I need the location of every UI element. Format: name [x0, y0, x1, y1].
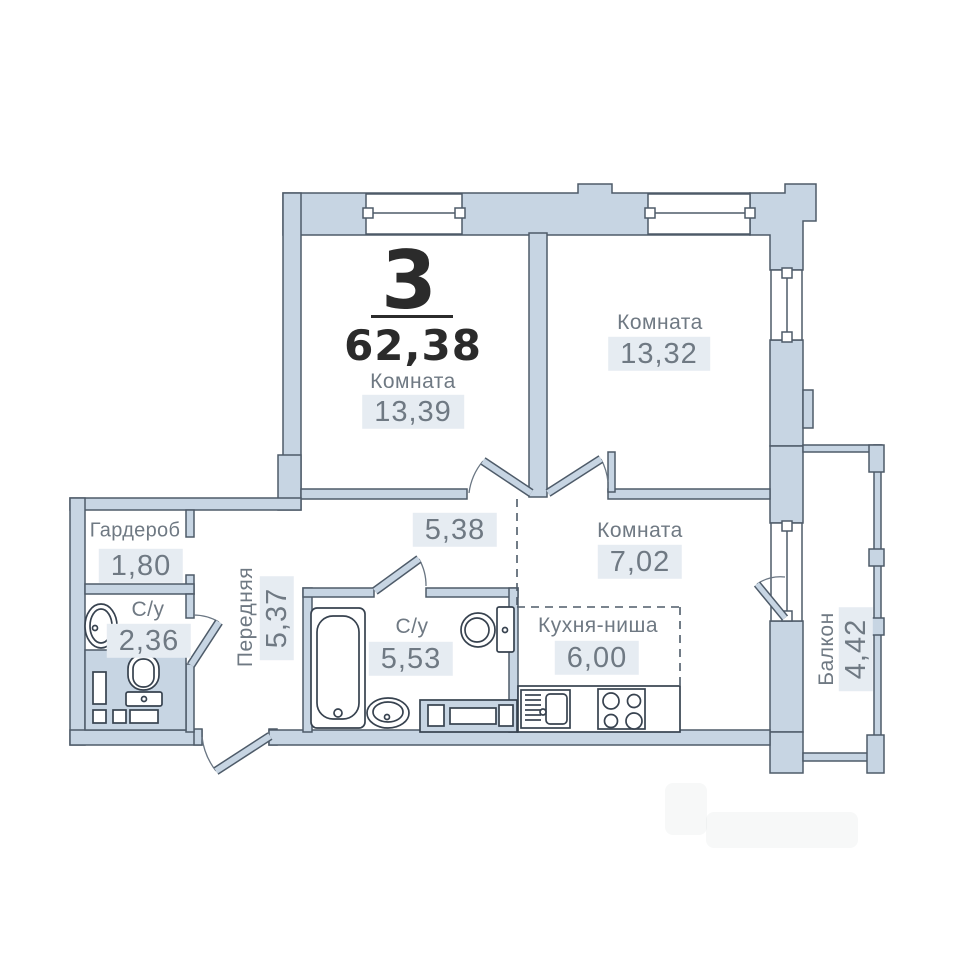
wall-room2-door-jamb [608, 452, 615, 492]
wall-wardrobe-south [85, 584, 194, 594]
wall-balcony-post-2 [869, 549, 884, 566]
unit-rooms-count: 3 [381, 239, 437, 323]
window-room1 [363, 194, 465, 234]
wall-east-low [770, 446, 803, 523]
wall-left-upper [283, 193, 301, 498]
hall-area: 5,37 [260, 576, 294, 660]
window-room2 [645, 194, 755, 234]
door-leaf-room1 [483, 461, 531, 493]
wall-east-mid [770, 340, 803, 446]
door-entrance [202, 736, 270, 771]
bathroom-small-name: С/у [132, 599, 165, 621]
toilet-large-bathroom [461, 607, 514, 652]
unit-total-area: 62,38 [344, 324, 482, 368]
walls [70, 184, 884, 773]
wall-bath1-east-a [186, 594, 194, 618]
wall-room1-south [301, 489, 467, 499]
wall-room2-south [608, 489, 770, 499]
wall-bottom-left [70, 730, 202, 745]
wardrobe-name: Гардероб [90, 521, 180, 542]
wall-ne-corner [750, 184, 816, 270]
corridor-area: 5,38 [413, 513, 497, 547]
door-leaf-entrance [216, 736, 270, 771]
watermark [665, 783, 707, 835]
wall-left-outer [70, 498, 85, 745]
room2-area: 13,32 [608, 337, 710, 371]
wall-balcony-bottom [803, 753, 875, 761]
floor-plan-page: 3 62,38 Комната 13,39 Комната 13,32 Комн… [0, 0, 960, 960]
hall-name: Передняя [235, 567, 257, 667]
room3-area: 7,02 [598, 545, 682, 579]
room2-name: Комната [617, 312, 703, 334]
unit-divider [371, 315, 453, 318]
kitchen-sink [521, 690, 570, 728]
wall-balcony-right [874, 445, 881, 765]
bathroom-large-area: 5,53 [369, 642, 453, 676]
wardrobe-area: 1,80 [99, 549, 183, 583]
wall-east-below-door [770, 621, 803, 732]
wall-bath2-north-b [426, 588, 518, 597]
door-arc-entrance [202, 737, 216, 771]
kitchen-niche-area: 6,00 [555, 641, 639, 675]
toilet-small-bathroom [126, 654, 162, 706]
washbasin-large-bathroom [367, 698, 409, 728]
balcony-name: Балкон [816, 612, 838, 685]
room1-name: Комната [370, 371, 456, 393]
door-arc-room1 [469, 461, 483, 493]
balcony-area: 4,42 [839, 607, 873, 691]
room3-name: Комната [597, 520, 683, 542]
wall-wardrobe-east-a [186, 510, 194, 537]
wall-east-bump [803, 390, 813, 428]
window-room2-east [771, 268, 802, 342]
wall-entry-jamb-left [194, 729, 202, 745]
watermark [706, 812, 858, 848]
wall-east-bottom-block [770, 732, 803, 773]
wall-balcony-post-1 [869, 445, 884, 472]
wall-lower-top [70, 498, 301, 510]
door-room2 [548, 459, 608, 493]
stove [598, 689, 645, 729]
door-leaf-bathroom-small [191, 622, 219, 665]
bathtub [311, 608, 365, 728]
vanity-block-large-bathroom [420, 700, 517, 732]
door-leaf-room2 [548, 459, 601, 493]
door-bathroom-large [375, 559, 426, 591]
kitchen-niche-name: Кухня-ниша [538, 615, 658, 637]
door-bathroom-small [191, 615, 219, 665]
door-room1 [469, 461, 531, 493]
room1-area: 13,39 [362, 395, 464, 429]
wall-balcony-post-4 [867, 735, 884, 773]
wall-bath2-north-a [303, 588, 374, 597]
bathroom-large-name: С/у [396, 616, 429, 638]
wall-mid-vertical [529, 233, 547, 497]
wall-bath1-east-b [186, 664, 194, 732]
door-leaf-bathroom-large [375, 559, 419, 591]
bathroom-small-area: 2,36 [107, 624, 191, 658]
